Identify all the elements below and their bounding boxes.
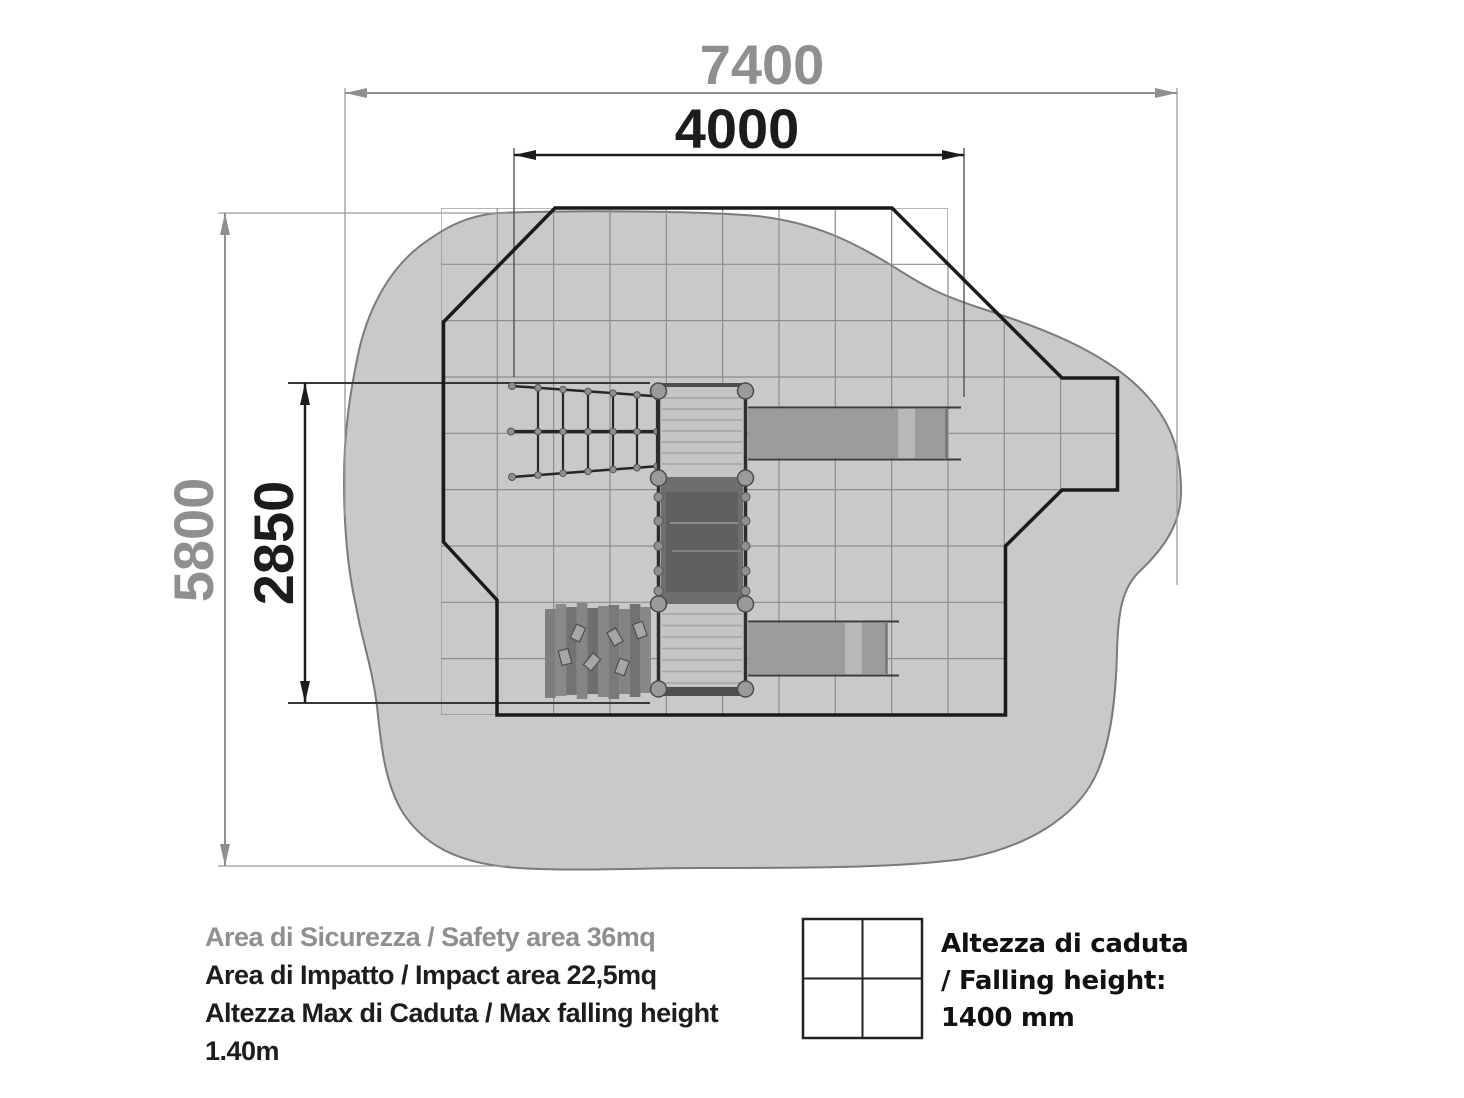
arrow-right-icon xyxy=(1155,88,1177,98)
dimension-label: 5800 xyxy=(162,478,225,603)
rope-bridge-inner xyxy=(666,492,738,592)
ladder-knot xyxy=(508,428,515,435)
wall-plank xyxy=(609,605,620,699)
bridge-post xyxy=(654,567,663,576)
ladder-knot xyxy=(560,386,567,393)
play-tower xyxy=(651,383,754,697)
ladder-knot xyxy=(585,428,592,435)
tower-post xyxy=(738,470,754,486)
falling-height-legend: Altezza di caduta / Falling height: 1400… xyxy=(803,919,1189,1038)
dimension-total-depth: 5800 xyxy=(162,213,230,866)
wall-plank xyxy=(545,609,556,698)
slide-bed xyxy=(748,623,886,674)
bridge-post xyxy=(654,517,663,526)
ladder-knot xyxy=(535,428,542,435)
ladder-knot xyxy=(560,428,567,435)
ladder-knot xyxy=(509,383,516,390)
wall-plank xyxy=(577,603,588,699)
max-falling-height-note: Altezza Max di Caduta / Max falling heig… xyxy=(205,998,719,1028)
dimension-label: 7400 xyxy=(700,33,825,96)
ladder-knot xyxy=(634,428,641,435)
ladder-knot xyxy=(535,385,542,392)
tower-post xyxy=(738,383,754,399)
falling-height-label-line2: / Falling height: xyxy=(941,966,1166,996)
dimension-label: 2850 xyxy=(242,481,305,606)
wall-plank xyxy=(587,608,598,694)
ladder-knot xyxy=(634,392,641,399)
arrow-down-icon xyxy=(220,844,230,866)
bridge-post xyxy=(741,542,750,551)
lower-platform-deck xyxy=(660,604,744,689)
bridge-post xyxy=(741,567,750,576)
bridge-post xyxy=(654,493,663,502)
tower-post xyxy=(651,470,667,486)
slide-highlight xyxy=(845,623,862,674)
impact-area-note: Area di Impatto / Impact area 22,5mq xyxy=(205,960,657,990)
slide-upper xyxy=(748,408,961,460)
max-falling-height-value: 1.40m xyxy=(205,1036,279,1066)
bridge-post xyxy=(654,587,663,596)
wall-plank xyxy=(630,604,641,697)
falling-height-label-line1: Altezza di caduta xyxy=(941,929,1189,959)
climbing-wall xyxy=(545,603,651,699)
bridge-post xyxy=(741,517,750,526)
ladder-knot xyxy=(535,472,542,479)
ladder-knot xyxy=(610,428,617,435)
bridge-post xyxy=(654,542,663,551)
tower-post xyxy=(651,681,667,697)
slide-highlight xyxy=(898,409,915,458)
dimension-label: 4000 xyxy=(675,97,800,160)
slide-lower xyxy=(748,622,899,676)
ladder-knot xyxy=(585,468,592,475)
slide-bed xyxy=(748,409,946,458)
wall-plank xyxy=(640,607,651,693)
ladder-knot xyxy=(585,388,592,395)
arrow-down-icon xyxy=(300,681,310,703)
ladder-knot xyxy=(509,474,516,481)
safety-notes: Area di Sicurezza / Safety area 36mq Are… xyxy=(205,922,719,1066)
arrow-left-icon xyxy=(345,88,367,98)
safety-area-note: Area di Sicurezza / Safety area 36mq xyxy=(205,922,655,952)
ladder-knot xyxy=(610,390,617,397)
wall-plank xyxy=(619,609,630,694)
safety-area-shape xyxy=(344,211,1181,869)
falling-height-value: 1400 mm xyxy=(941,1003,1075,1033)
arrow-left-icon xyxy=(514,150,536,160)
tower-post xyxy=(651,596,667,612)
tower-post xyxy=(651,383,667,399)
bridge-post xyxy=(741,587,750,596)
arrow-up-icon xyxy=(300,383,310,405)
ladder-knot xyxy=(634,464,641,471)
arrow-right-icon xyxy=(942,150,964,160)
dimension-total-width: 7400 xyxy=(345,33,1177,98)
wall-plank xyxy=(598,606,609,697)
dimension-inner-depth: 2850 xyxy=(242,383,310,703)
platform-bottom-cap xyxy=(658,687,746,696)
tower-post xyxy=(738,681,754,697)
arrow-up-icon xyxy=(220,213,230,235)
ladder-knot xyxy=(560,470,567,477)
site-plan: 7400 4000 5800 2850 Area di Sicurezza / … xyxy=(0,0,1464,1098)
tower-post xyxy=(738,596,754,612)
site-plan-canvas: 7400 4000 5800 2850 Area di Sicurezza / … xyxy=(0,0,1464,1098)
ladder-knot xyxy=(610,466,617,473)
dimension-inner-width: 4000 xyxy=(514,97,964,160)
bridge-post xyxy=(741,493,750,502)
